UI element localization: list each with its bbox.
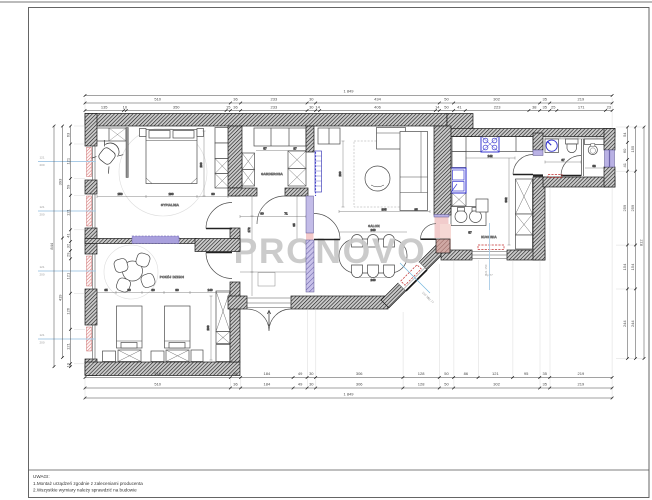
svg-text:142: 142 xyxy=(487,154,492,158)
svg-text:30: 30 xyxy=(309,97,314,102)
svg-text:121: 121 xyxy=(65,157,70,164)
svg-text:510: 510 xyxy=(154,371,161,376)
svg-text:30: 30 xyxy=(309,104,314,109)
svg-text:155: 155 xyxy=(630,145,635,152)
svg-text:259: 259 xyxy=(630,204,635,211)
svg-text:121: 121 xyxy=(65,342,70,349)
svg-text:49: 49 xyxy=(298,382,303,387)
svg-text:50: 50 xyxy=(444,104,449,109)
svg-text:80: 80 xyxy=(151,288,155,292)
svg-text:35: 35 xyxy=(542,371,547,376)
svg-text:128: 128 xyxy=(418,382,425,387)
svg-text:90: 90 xyxy=(175,288,179,292)
svg-text:86: 86 xyxy=(464,371,469,376)
svg-text:37: 37 xyxy=(293,147,297,151)
svg-text:41: 41 xyxy=(65,233,70,238)
svg-text:184: 184 xyxy=(264,382,271,387)
svg-text:259: 259 xyxy=(622,204,627,211)
svg-text:240: 240 xyxy=(370,278,375,282)
svg-text:302: 302 xyxy=(493,97,500,102)
svg-text:350: 350 xyxy=(173,104,180,109)
svg-text:510: 510 xyxy=(154,97,161,102)
svg-text:10: 10 xyxy=(65,362,70,367)
svg-text:59: 59 xyxy=(65,184,70,189)
svg-text:154: 154 xyxy=(622,263,627,270)
svg-text:419: 419 xyxy=(57,294,62,301)
svg-text:PRONOVO: PRONOVO xyxy=(234,231,427,271)
svg-text:41: 41 xyxy=(457,104,462,109)
svg-text:54: 54 xyxy=(622,132,627,137)
svg-text:510: 510 xyxy=(154,382,161,387)
svg-text:50: 50 xyxy=(444,371,449,376)
svg-text:244: 244 xyxy=(630,320,635,327)
svg-text:67: 67 xyxy=(561,158,565,162)
svg-text:154: 154 xyxy=(630,263,635,270)
svg-text:35: 35 xyxy=(292,223,296,227)
svg-text:71: 71 xyxy=(284,212,288,216)
svg-text:95: 95 xyxy=(524,371,529,376)
svg-text:25: 25 xyxy=(551,104,556,109)
svg-text:65: 65 xyxy=(104,288,108,292)
svg-text:bp 77: bp 77 xyxy=(485,273,493,277)
svg-text:36: 36 xyxy=(233,104,238,109)
svg-text:32: 32 xyxy=(65,243,70,248)
svg-text:57: 57 xyxy=(468,231,472,235)
svg-text:171: 171 xyxy=(578,104,585,109)
svg-text:233: 233 xyxy=(271,97,278,102)
svg-text:35: 35 xyxy=(542,104,547,109)
svg-text:135: 135 xyxy=(101,104,108,109)
svg-text:SYPIALNIA: SYPIALNIA xyxy=(161,203,179,207)
svg-text:434: 434 xyxy=(374,97,381,102)
svg-text:306: 306 xyxy=(356,371,363,376)
svg-text:14: 14 xyxy=(435,104,440,109)
svg-text:41: 41 xyxy=(622,162,627,167)
svg-text:200: 200 xyxy=(39,163,44,167)
svg-text:126: 126 xyxy=(65,307,70,314)
svg-text:1 849: 1 849 xyxy=(343,392,354,397)
svg-text:1 849: 1 849 xyxy=(343,89,354,94)
svg-text:302: 302 xyxy=(493,382,500,387)
svg-text:184: 184 xyxy=(264,371,271,376)
svg-text:90: 90 xyxy=(127,288,131,292)
svg-text:14: 14 xyxy=(315,104,320,109)
svg-text:200: 200 xyxy=(199,162,203,167)
svg-text:219: 219 xyxy=(578,382,585,387)
svg-text:2.Wszystkie wymiary należy spr: 2.Wszystkie wymiary należy sprawdzić na … xyxy=(33,488,137,493)
svg-text:68: 68 xyxy=(592,164,596,168)
svg-text:1.Montaż urządzeń zgodnie z za: 1.Montaż urządzeń zgodnie z zaleceniami … xyxy=(33,481,143,486)
svg-text:233: 233 xyxy=(271,104,278,109)
svg-text:150: 150 xyxy=(117,192,122,196)
svg-text:121: 121 xyxy=(39,156,44,160)
svg-text:244: 244 xyxy=(622,320,627,327)
svg-text:230: 230 xyxy=(338,171,342,176)
svg-text:200: 200 xyxy=(39,213,44,217)
svg-text:219: 219 xyxy=(578,371,585,376)
svg-text:POKÓJ DZIECI: POKÓJ DZIECI xyxy=(160,274,184,279)
svg-text:121: 121 xyxy=(39,265,44,269)
svg-text:90: 90 xyxy=(211,192,215,196)
svg-text:38: 38 xyxy=(532,104,537,109)
svg-text:30: 30 xyxy=(309,371,314,376)
svg-text:121: 121 xyxy=(39,333,44,337)
svg-text:203: 203 xyxy=(206,325,210,330)
svg-text:50: 50 xyxy=(444,97,449,102)
svg-text:406: 406 xyxy=(374,104,381,109)
svg-text:844: 844 xyxy=(49,242,54,249)
svg-text:36: 36 xyxy=(233,382,238,387)
svg-text:63: 63 xyxy=(65,132,70,137)
svg-text:121: 121 xyxy=(65,208,70,215)
svg-text:36: 36 xyxy=(233,371,238,376)
svg-text:90: 90 xyxy=(260,212,264,216)
svg-text:UWAGI:: UWAGI: xyxy=(33,474,50,479)
svg-text:30: 30 xyxy=(309,382,314,387)
svg-text:36: 36 xyxy=(233,97,238,102)
svg-text:393: 393 xyxy=(57,178,62,185)
svg-text:GARDEROBA: GARDEROBA xyxy=(261,172,283,176)
svg-text:10: 10 xyxy=(123,104,128,109)
svg-text:121: 121 xyxy=(65,272,70,279)
svg-text:35: 35 xyxy=(414,208,418,212)
svg-text:23: 23 xyxy=(607,104,612,109)
svg-text:812: 812 xyxy=(639,239,644,246)
svg-text:200: 200 xyxy=(39,273,44,277)
svg-text:190: 190 xyxy=(168,192,173,196)
svg-text:49: 49 xyxy=(298,371,303,376)
svg-text:35: 35 xyxy=(542,382,547,387)
svg-text:140: 140 xyxy=(207,288,212,292)
svg-text:128: 128 xyxy=(418,371,425,376)
svg-text:305: 305 xyxy=(381,208,386,212)
svg-text:121: 121 xyxy=(492,371,499,376)
svg-text:57: 57 xyxy=(263,147,267,151)
svg-text:50: 50 xyxy=(444,382,449,387)
svg-text:223: 223 xyxy=(494,104,501,109)
svg-text:121: 121 xyxy=(39,205,44,209)
svg-text:302: 302 xyxy=(504,197,508,202)
svg-text:200: 200 xyxy=(39,341,44,345)
svg-text:KUCHNIA: KUCHNIA xyxy=(481,235,497,239)
svg-text:15: 15 xyxy=(226,104,231,109)
svg-text:35: 35 xyxy=(542,97,547,102)
svg-text:29: 29 xyxy=(65,252,70,257)
svg-text:219: 219 xyxy=(578,97,585,102)
svg-text:306: 306 xyxy=(356,382,363,387)
svg-text:60: 60 xyxy=(622,148,627,153)
